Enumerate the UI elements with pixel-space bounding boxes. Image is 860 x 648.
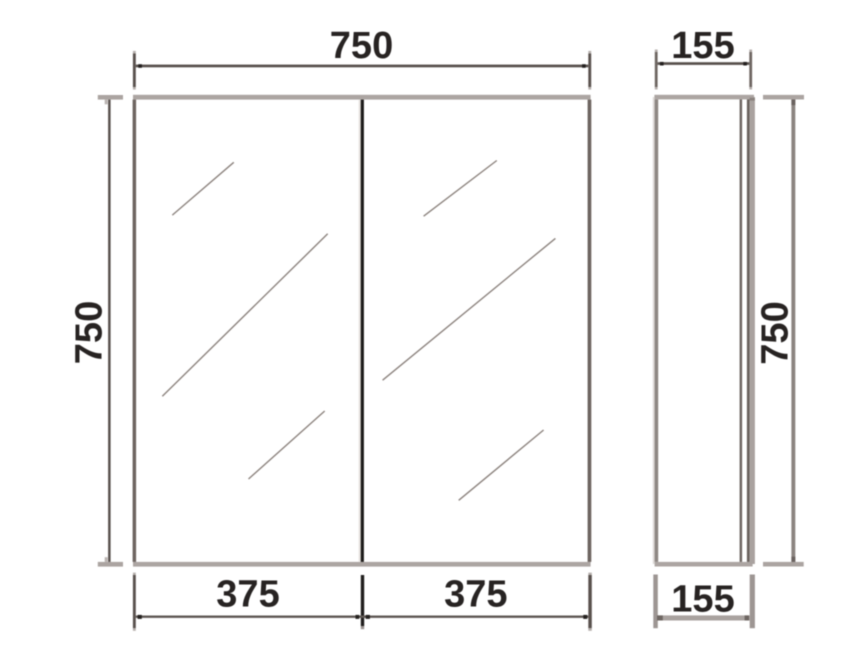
svg-text:750: 750 — [330, 25, 393, 67]
svg-text:750: 750 — [69, 301, 111, 364]
svg-text:750: 750 — [755, 301, 797, 364]
svg-text:155: 155 — [671, 25, 734, 67]
svg-text:375: 375 — [444, 574, 507, 616]
svg-text:375: 375 — [216, 574, 279, 616]
svg-text:155: 155 — [671, 579, 734, 621]
